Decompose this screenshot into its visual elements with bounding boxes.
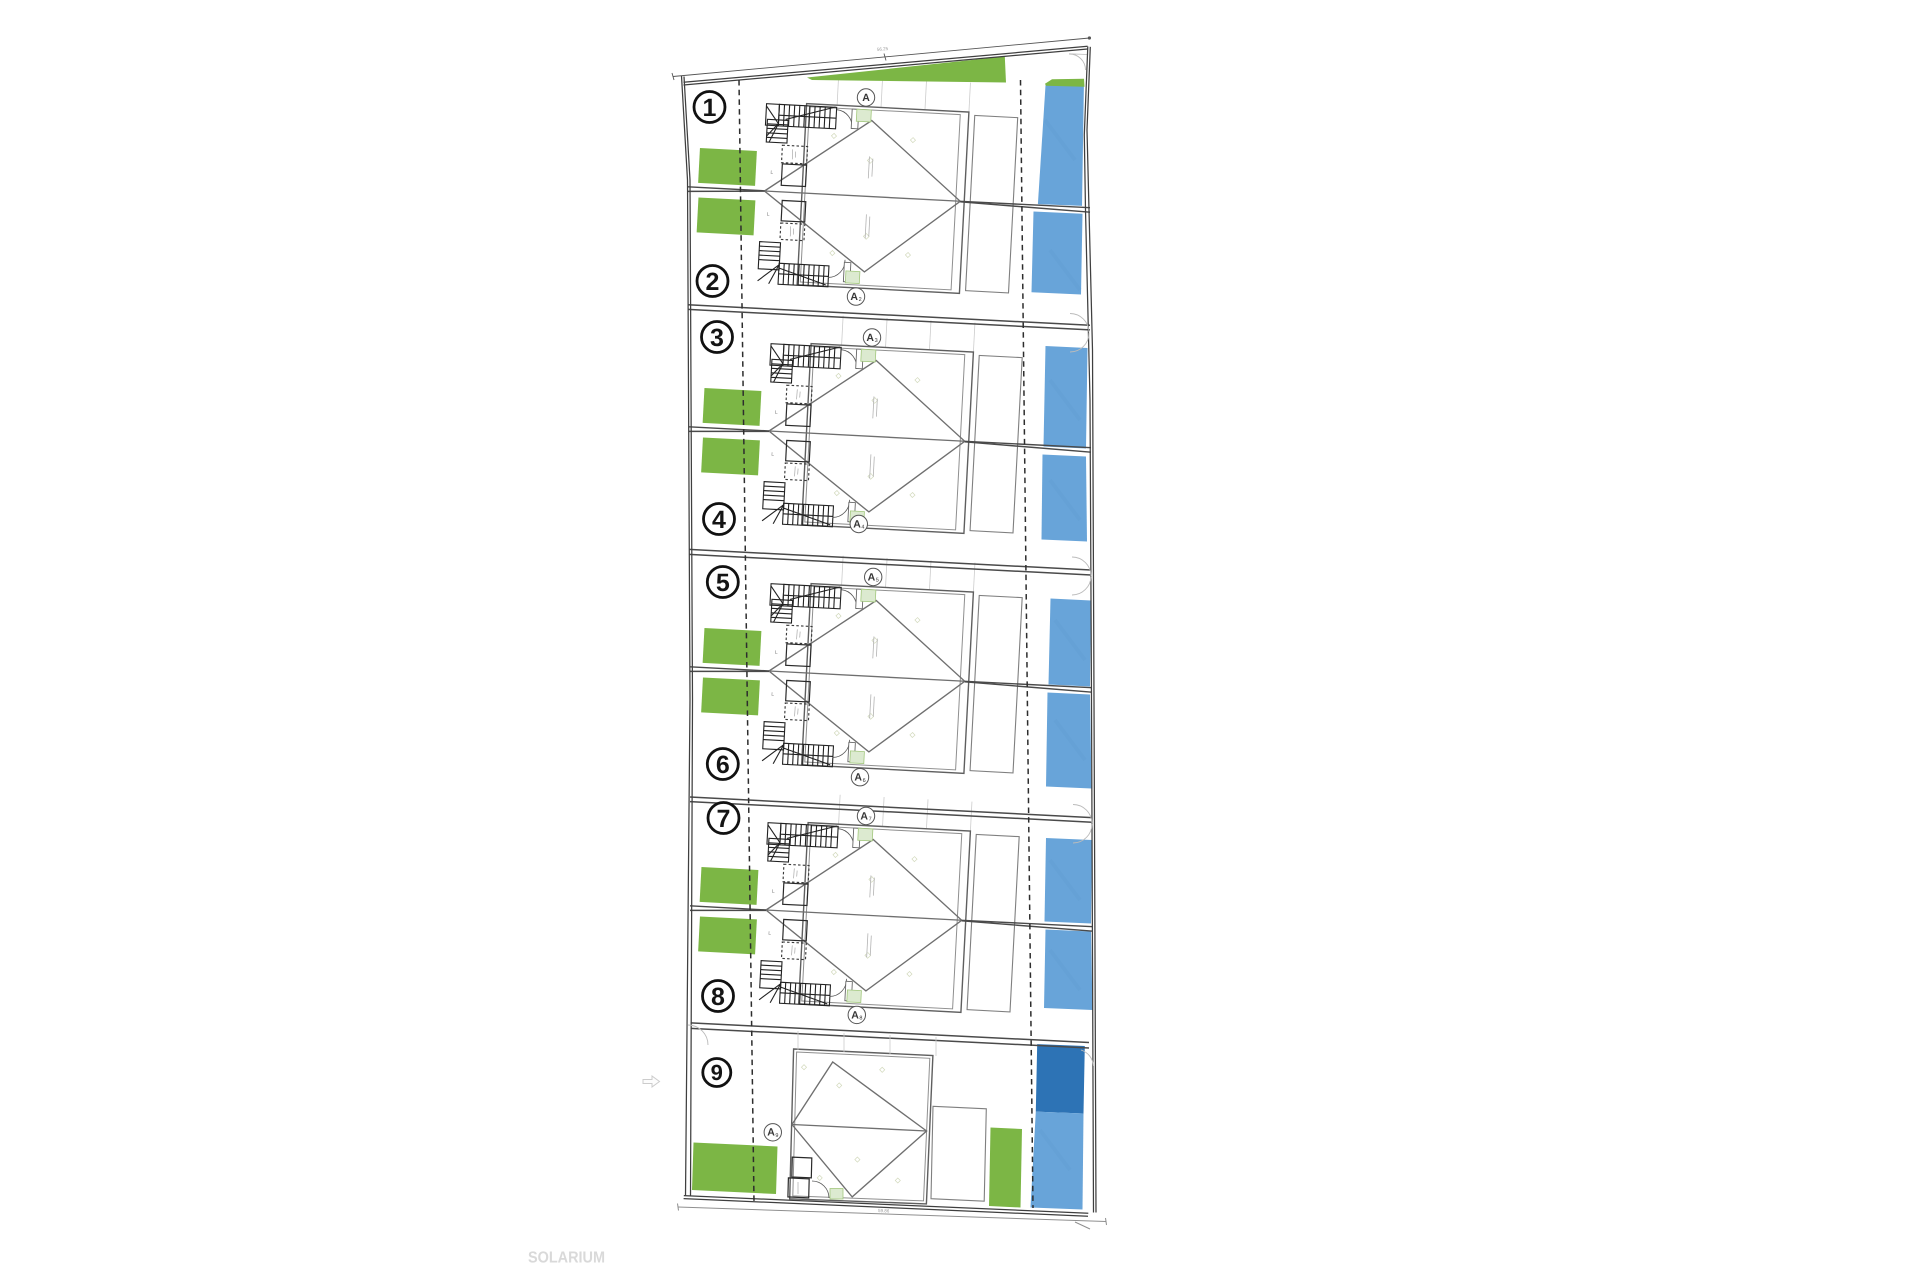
svg-text:A: A	[862, 92, 870, 104]
svg-text:4: 4	[861, 525, 864, 531]
svg-text:8: 8	[711, 983, 725, 1011]
svg-text:2: 2	[706, 268, 720, 296]
svg-text:A: A	[851, 1009, 859, 1021]
svg-text:59.86: 59.86	[878, 1208, 890, 1213]
svg-text:4: 4	[712, 506, 726, 534]
svg-text:7: 7	[717, 805, 731, 833]
svg-text:A: A	[860, 810, 868, 822]
svg-text:A: A	[868, 571, 876, 583]
svg-text:5: 5	[716, 569, 730, 597]
svg-text:6: 6	[716, 751, 730, 779]
svg-text:2: 2	[859, 297, 862, 303]
svg-text:7: 7	[869, 817, 872, 823]
svg-text:A: A	[866, 332, 874, 344]
svg-text:1: 1	[703, 94, 717, 122]
svg-text:5: 5	[876, 578, 879, 584]
svg-text:3: 3	[875, 338, 878, 344]
svg-text:A: A	[850, 291, 858, 303]
svg-text:6: 6	[863, 778, 866, 784]
svg-text:A: A	[854, 772, 862, 784]
svg-text:SOLARIUM: SOLARIUM	[528, 1250, 605, 1267]
svg-text:9: 9	[711, 1060, 723, 1085]
svg-text:8: 8	[859, 1016, 862, 1022]
svg-text:3: 3	[710, 324, 724, 352]
svg-text:A: A	[767, 1127, 775, 1139]
svg-text:A: A	[853, 518, 861, 530]
svg-text:9: 9	[775, 1133, 778, 1139]
